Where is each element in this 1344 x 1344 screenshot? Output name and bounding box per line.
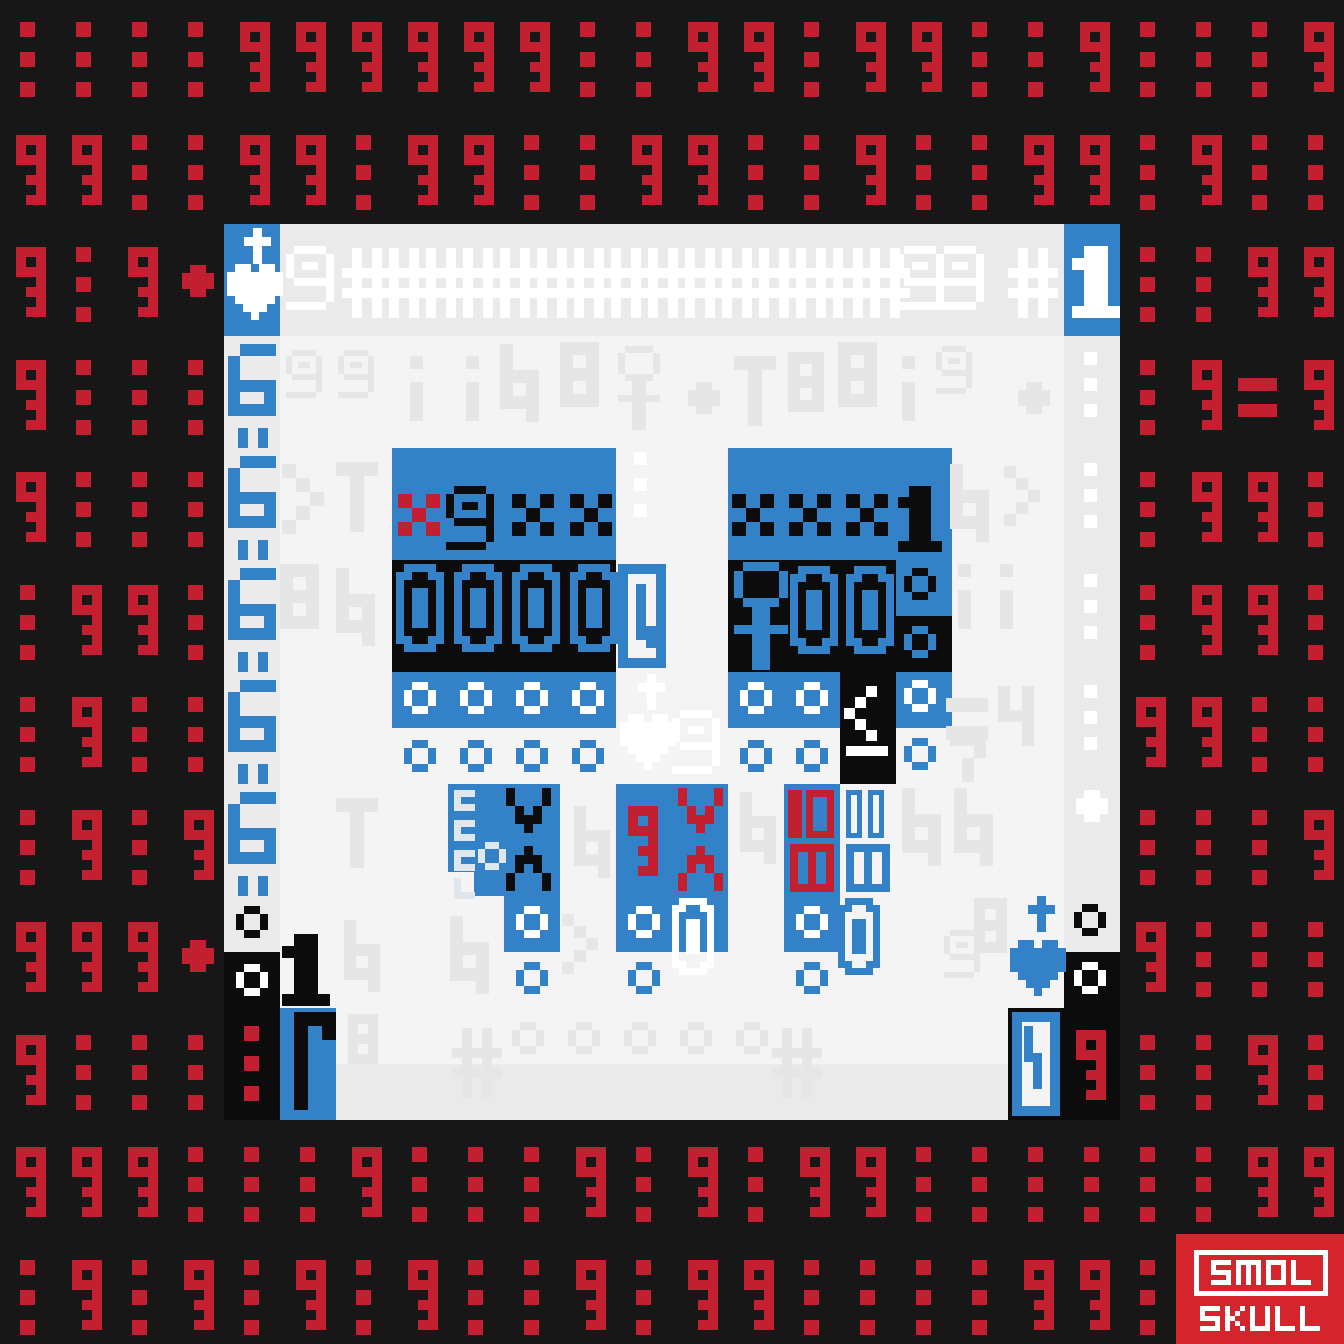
border-glyph-dots	[509, 1260, 524, 1275]
faint	[442, 1028, 452, 1038]
border-glyph-dots	[901, 1260, 916, 1275]
cheek-ring	[471, 842, 478, 849]
border-glyph-dots	[1125, 1147, 1140, 1162]
border-glyph-key	[286, 135, 296, 145]
header-one	[1060, 246, 1072, 258]
faint	[338, 1014, 348, 1024]
chin-ring-1	[508, 962, 516, 970]
border-glyph-dots	[61, 360, 76, 375]
faint	[945, 564, 958, 577]
mouth-box	[616, 784, 728, 952]
border-glyph-key	[734, 1260, 744, 1270]
header-nine-3	[928, 246, 936, 254]
border-glyph-dot	[174, 940, 182, 948]
border-glyph-key	[62, 810, 72, 820]
cheek-l	[447, 878, 454, 885]
border-glyph-dots	[173, 1035, 188, 1050]
bl-one	[270, 934, 282, 946]
left-teeth-ring-2-1	[396, 740, 404, 748]
border-glyph-key	[1182, 585, 1192, 595]
border-glyph-dots	[1181, 922, 1196, 937]
border-glyph-dots	[733, 135, 748, 150]
border-glyph-key	[62, 585, 72, 595]
left-col-quotes-5	[228, 876, 238, 886]
header-nine	[278, 246, 286, 254]
right-teeth-ring-2-2	[788, 740, 796, 748]
io-frame	[806, 790, 834, 838]
border-glyph-key	[566, 1147, 576, 1157]
border-glyph-dots	[789, 1260, 804, 1275]
molar-ring-3	[788, 906, 796, 914]
br-cross	[1019, 896, 1028, 905]
cheek-e-2	[447, 820, 454, 827]
faint	[453, 356, 466, 369]
left-eye-band	[392, 560, 616, 672]
border-glyph-dots	[117, 1260, 132, 1275]
border-glyph-key	[286, 1260, 296, 1270]
border-glyph-key	[118, 922, 128, 932]
left-band-zero-3	[504, 564, 512, 572]
left-col-six-5	[216, 792, 228, 804]
panel-bg	[224, 224, 1120, 1120]
header-hash-10	[665, 248, 675, 258]
right-col-ring-3	[896, 680, 904, 688]
border-glyph-key	[342, 22, 352, 32]
border-glyph-dots	[173, 472, 188, 487]
left-eye-x-1	[498, 494, 512, 508]
left-col-quotes-1	[228, 428, 238, 438]
border-glyph-dots	[1293, 135, 1308, 150]
faint	[487, 344, 500, 357]
faint-3	[616, 1022, 624, 1030]
header-hash-end	[998, 248, 1008, 258]
border-glyph-key	[1014, 1260, 1024, 1270]
right-teeth-band	[728, 672, 840, 728]
left-col-six-1	[216, 344, 228, 356]
border-glyph-key	[846, 22, 856, 32]
io-bar	[788, 790, 802, 838]
mouth-zero	[665, 898, 672, 905]
header-heart	[219, 264, 227, 272]
border-glyph-equals	[1225, 378, 1238, 391]
br-ring-black	[1066, 904, 1074, 912]
right-teeth-ring-2-1	[732, 740, 740, 748]
left-teeth-ring-3	[508, 682, 516, 690]
faint	[937, 464, 950, 477]
left-col-quotes-2	[228, 540, 238, 550]
right-col-white-dot	[1068, 790, 1076, 798]
border-glyph-key	[398, 1260, 408, 1270]
border-glyph-key	[286, 22, 296, 32]
bl-key-glyph	[266, 1012, 280, 1026]
chin-ring-3	[788, 962, 796, 970]
faint	[941, 788, 954, 801]
border-glyph-dots	[789, 22, 804, 37]
border-glyph-key	[6, 1035, 16, 1045]
border-glyph-key	[1238, 1035, 1248, 1045]
border-glyph-dots	[1181, 247, 1196, 262]
border-glyph-dot	[174, 265, 182, 273]
border-glyph-dots	[901, 1147, 916, 1162]
faint	[938, 734, 950, 746]
border-glyph-key	[6, 1147, 16, 1157]
left-eye-x-2	[556, 494, 570, 508]
header-hash-8	[591, 248, 601, 258]
header-hash-1	[332, 248, 342, 258]
border-glyph-key	[846, 1147, 856, 1157]
faint	[332, 920, 344, 932]
border-glyph-key	[342, 1147, 352, 1157]
mid-nine	[664, 710, 672, 718]
border-glyph-dots	[1125, 22, 1140, 37]
cheek-e-1	[447, 790, 454, 797]
border-glyph-dots	[173, 585, 188, 600]
faint	[963, 898, 974, 909]
border-glyph-dots	[173, 135, 188, 150]
border-glyph-dots	[1125, 810, 1140, 825]
br-red-key	[1066, 1030, 1076, 1040]
border-glyph-key	[1294, 22, 1304, 32]
faint-1	[504, 1022, 512, 1030]
logo-letter-L	[1286, 1260, 1291, 1265]
border-glyph-dots	[1237, 135, 1252, 150]
border-glyph-key	[1182, 135, 1192, 145]
faint	[938, 930, 944, 936]
border-glyph-key	[174, 810, 184, 820]
border-glyph-key	[1238, 1147, 1248, 1157]
faint	[267, 564, 280, 577]
header-cell-right	[1064, 224, 1120, 336]
border-glyph-dots	[1181, 1035, 1196, 1050]
right-col-white-dots-4	[1071, 685, 1084, 698]
left-key-box	[280, 1008, 336, 1120]
faint	[547, 342, 560, 355]
right-eye-band	[728, 560, 896, 672]
border-glyph-dots	[509, 135, 524, 150]
border-glyph-dots	[117, 360, 132, 375]
border-glyph-dots	[621, 22, 636, 37]
border-glyph-dots	[901, 135, 916, 150]
header-hash-14	[813, 248, 823, 258]
border-glyph-dots	[5, 1260, 20, 1275]
border-glyph-dots	[1237, 22, 1252, 37]
right-col-cell-2	[896, 616, 952, 672]
border-glyph-key	[62, 922, 72, 932]
faint-5	[728, 1022, 736, 1030]
border-glyph-key	[6, 472, 16, 482]
border-glyph-dots	[117, 1035, 132, 1050]
border-glyph-key	[1294, 1147, 1304, 1157]
border-glyph-dots	[173, 1147, 188, 1162]
border-glyph-key	[678, 22, 688, 32]
border-glyph-key	[1182, 697, 1192, 707]
border-glyph-dots	[957, 135, 972, 150]
border-glyph-key	[622, 135, 632, 145]
border-glyph-key	[790, 1147, 800, 1157]
right-col-ring-2	[896, 626, 904, 634]
molar-ring-1	[508, 906, 516, 914]
border-glyph-key	[230, 22, 240, 32]
mid-white-dots	[621, 452, 634, 465]
left-col-quotes-3	[228, 652, 238, 662]
border-glyph-dots	[5, 585, 20, 600]
logo-letter-M	[1231, 1260, 1236, 1265]
logo-letter-L	[1270, 1306, 1275, 1311]
logo-letter-S	[1195, 1306, 1200, 1311]
border-glyph-dots	[957, 1147, 972, 1162]
border-glyph-key	[230, 135, 240, 145]
border-glyph-dots	[509, 1147, 524, 1162]
nose-glyph-bar	[636, 584, 646, 640]
border-glyph-dots	[957, 22, 972, 37]
border-glyph-dots	[1069, 1147, 1084, 1162]
right-cheek-zero	[831, 898, 838, 905]
border-glyph-dots	[1181, 1147, 1196, 1162]
border-glyph-dots	[845, 1260, 860, 1275]
bl-ring-black	[228, 906, 236, 914]
border-glyph-dots	[565, 135, 580, 150]
right-band-female	[725, 562, 734, 571]
ii-bar-2	[868, 790, 884, 838]
border-glyph-dots	[621, 1260, 636, 1275]
border-glyph-key	[62, 1260, 72, 1270]
border-glyph-dots	[117, 810, 132, 825]
border-glyph-key	[1294, 810, 1304, 820]
bl-red-dots	[229, 1026, 244, 1041]
header-nine-2	[888, 246, 896, 254]
left-teeth-ring-2-3	[508, 740, 516, 748]
left-band-zero-2	[446, 564, 454, 572]
left-teeth-ring-2	[452, 682, 460, 690]
header-hash-7	[554, 248, 564, 258]
border-glyph-key	[678, 1260, 688, 1270]
faint	[987, 564, 1000, 577]
border-glyph-key	[1070, 22, 1080, 32]
faint	[322, 798, 336, 812]
io-frame-2-bar	[808, 844, 816, 892]
right-eye-one	[887, 486, 898, 497]
header-hash-11	[702, 248, 712, 258]
bottom-band	[224, 1064, 1120, 1120]
border-glyph-dots	[229, 1260, 244, 1275]
border-glyph-key	[902, 22, 912, 32]
right-teeth-ring-1	[732, 682, 740, 690]
border-glyph-key	[62, 135, 72, 145]
br-heart	[1002, 940, 1010, 948]
right-col-ring-1	[896, 568, 904, 576]
header-hash-13	[776, 248, 786, 258]
header-hash-6	[517, 248, 527, 258]
faint	[932, 698, 946, 712]
border-glyph-dots	[1293, 585, 1308, 600]
border-glyph-dots	[397, 1147, 412, 1162]
border-glyph-key	[6, 135, 16, 145]
border-glyph-dots	[1125, 472, 1140, 487]
less-than-glyph	[833, 686, 844, 697]
border-glyph-dots	[957, 1260, 972, 1275]
border-glyph-dots	[173, 360, 188, 375]
border-glyph-key	[1238, 247, 1248, 257]
border-glyph-dots	[61, 472, 76, 487]
border-glyph-key	[6, 922, 16, 932]
border-glyph-key	[846, 135, 856, 145]
border-glyph-dots	[285, 1147, 300, 1162]
top-band	[224, 224, 1120, 336]
right-col-cell-1	[896, 560, 952, 616]
border-glyph-key	[398, 135, 408, 145]
bl-ring-white	[228, 964, 236, 972]
border-glyph-dots	[453, 1147, 468, 1162]
border-glyph-key	[118, 1147, 128, 1157]
left-col-six-3	[216, 568, 228, 580]
border-glyph-dots	[1293, 1035, 1308, 1050]
border-glyph-dots	[1013, 1147, 1028, 1162]
border-glyph-key	[678, 1147, 688, 1157]
mid-heart	[612, 714, 620, 722]
border-glyph-dots	[5, 810, 20, 825]
border-glyph-dots	[565, 22, 580, 37]
left-teeth-band	[392, 672, 616, 728]
header-cell-left	[224, 224, 280, 336]
faint	[889, 788, 902, 801]
border-glyph-key	[1126, 922, 1136, 932]
border-glyph-key	[1070, 1260, 1080, 1270]
faint	[562, 806, 574, 818]
faint	[930, 346, 936, 352]
mouth-caret	[669, 846, 678, 855]
mid-cross	[629, 674, 638, 683]
border-glyph-dots	[5, 22, 20, 37]
faint	[323, 568, 336, 581]
left-teeth-ring-1	[396, 682, 404, 690]
border-glyph-dots	[117, 697, 132, 712]
right-eye-x-3	[832, 494, 846, 508]
faint	[268, 464, 282, 478]
border-glyph-key	[1070, 135, 1080, 145]
border-glyph-dots	[1181, 22, 1196, 37]
border-glyph-dots	[1125, 135, 1140, 150]
border-glyph-dots	[61, 22, 76, 37]
border-glyph-dots	[117, 472, 132, 487]
border-glyph-dots	[117, 22, 132, 37]
header-cross	[235, 228, 244, 237]
border-glyph-key	[678, 135, 688, 145]
ii-frame-bar	[864, 844, 872, 892]
faint	[550, 914, 562, 926]
cheek-v	[497, 788, 506, 797]
logo-letter-O	[1261, 1260, 1266, 1265]
faint	[1010, 382, 1018, 390]
mouth-v	[669, 788, 678, 797]
right-band-zero-2	[838, 566, 846, 574]
border-glyph-dots	[61, 1035, 76, 1050]
faint	[986, 686, 998, 698]
border-glyph-key	[6, 360, 16, 370]
border-glyph-key	[454, 135, 464, 145]
border-glyph-dots	[733, 1147, 748, 1162]
logo-frame	[1194, 1250, 1328, 1296]
border-glyph-dots	[1125, 247, 1140, 262]
border-glyph-key	[1182, 360, 1192, 370]
header-hash-5	[480, 248, 490, 258]
border-glyph-dots	[61, 247, 76, 262]
faint	[825, 342, 838, 355]
border-glyph-dots	[1237, 922, 1252, 937]
faint	[437, 916, 450, 929]
cheek-e-3	[447, 850, 454, 857]
left-teeth-ring-4	[564, 682, 572, 690]
faint	[720, 356, 734, 370]
border-glyph-dots	[1013, 22, 1028, 37]
logo-letter-U	[1245, 1306, 1250, 1311]
border-glyph-key	[454, 22, 464, 32]
border-glyph-key	[1014, 135, 1024, 145]
border-glyph-dots	[5, 697, 20, 712]
header-hash-4	[443, 248, 453, 258]
faint	[728, 792, 740, 804]
left-teeth-ring-2-2	[452, 740, 460, 748]
header-hash-2	[369, 248, 379, 258]
right-band-zero-1	[782, 566, 790, 574]
faint	[332, 350, 338, 356]
faint	[889, 356, 902, 369]
logo-letter-L	[1295, 1306, 1300, 1311]
border-glyph-dots	[1237, 697, 1252, 712]
faint	[397, 356, 410, 369]
border-glyph-key	[566, 1260, 576, 1270]
right-eye-x-1	[718, 494, 732, 508]
border-glyph-key	[1126, 697, 1136, 707]
faint	[680, 382, 688, 390]
border-glyph-dots	[1293, 697, 1308, 712]
right-col-ring-4	[896, 738, 904, 746]
cheek-caret	[497, 846, 506, 855]
br-key-glyph	[1015, 1026, 1024, 1035]
logo-letter-K	[1220, 1306, 1225, 1311]
nose-glyph-foot	[646, 626, 656, 648]
border-glyph-key	[510, 22, 520, 32]
right-col-white-dots-2	[1071, 463, 1084, 476]
border-glyph-key	[1182, 472, 1192, 482]
faint	[611, 346, 618, 353]
header-hash-9	[628, 248, 638, 258]
border-glyph-key	[1294, 360, 1304, 370]
left-col-six-4	[216, 680, 228, 692]
border-glyph-dots	[341, 135, 356, 150]
border-glyph-key	[734, 22, 744, 32]
right-col-white-dots-3	[1071, 574, 1084, 587]
border-glyph-key	[174, 1260, 184, 1270]
border-glyph-key	[1238, 585, 1248, 595]
right-eye-x-2	[775, 494, 789, 508]
header-hash-15	[850, 248, 860, 258]
border-glyph-key	[118, 585, 128, 595]
left-eye-nine	[438, 486, 446, 494]
left-col-six-2	[216, 456, 228, 468]
faint	[280, 350, 286, 356]
border-glyph-dots	[1125, 585, 1140, 600]
chin-ring-2	[620, 962, 628, 970]
border-glyph-dots	[1125, 1260, 1140, 1275]
border-glyph-dots	[621, 1147, 636, 1162]
faint-2	[560, 1022, 568, 1030]
left-band-zero-4	[562, 564, 570, 572]
border-glyph-dots	[789, 135, 804, 150]
border-glyph-dots	[1293, 922, 1308, 937]
border-glyph-dots	[1125, 360, 1140, 375]
left-eye-x-red	[384, 494, 398, 508]
left-teeth-ring-2-4	[564, 740, 572, 748]
